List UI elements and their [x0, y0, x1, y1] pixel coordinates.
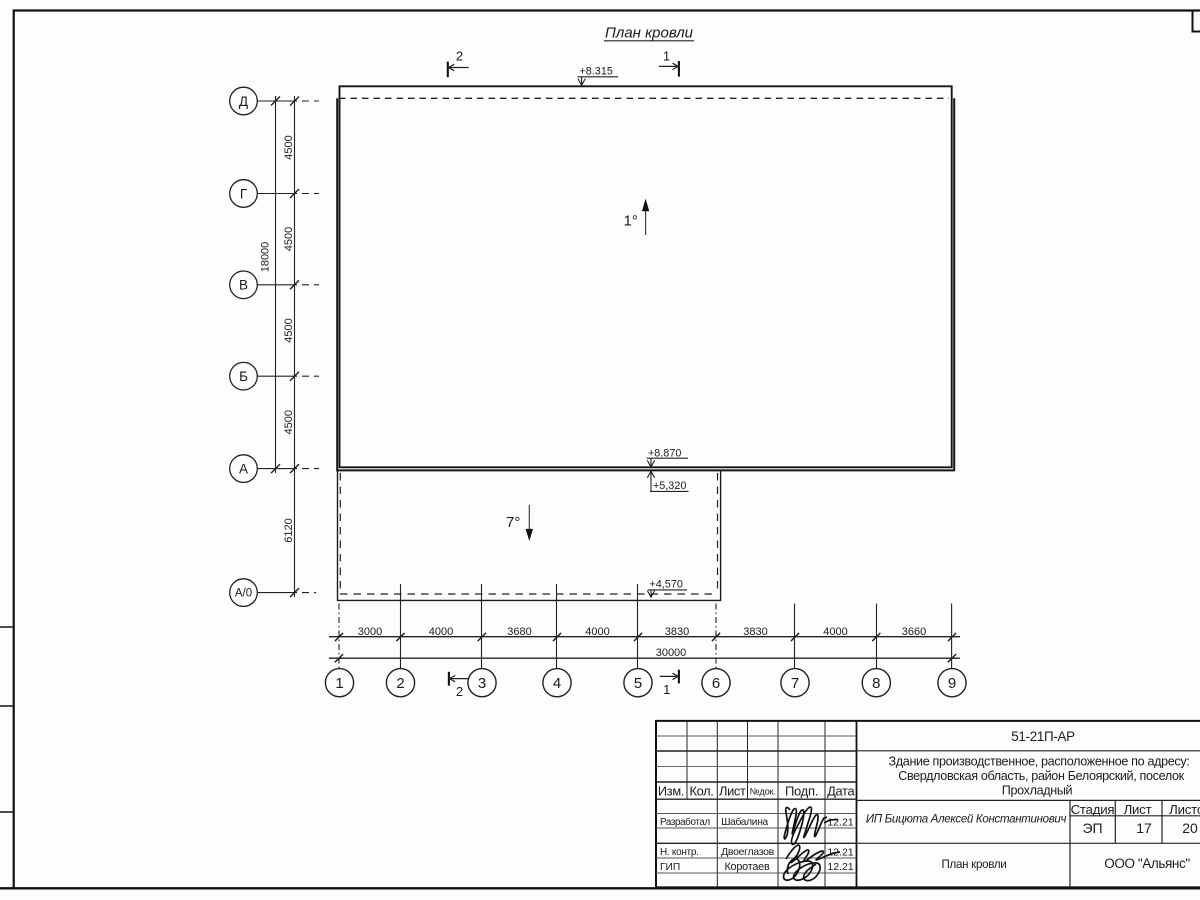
svg-text:20: 20 [1182, 820, 1198, 836]
svg-text:4500: 4500 [283, 410, 295, 434]
svg-text:План кровли: План кровли [942, 858, 1007, 871]
svg-text:3660: 3660 [902, 626, 926, 638]
svg-text:ГИП: ГИП [660, 862, 680, 873]
svg-text:Дата: Дата [827, 784, 855, 799]
svg-text:51-21П-АР: 51-21П-АР [1011, 729, 1075, 744]
svg-text:3830: 3830 [743, 626, 767, 638]
svg-text:7°: 7° [506, 514, 520, 531]
svg-text:5: 5 [634, 675, 642, 692]
svg-text:1: 1 [663, 682, 670, 697]
svg-text:План кровли: План кровли [605, 25, 694, 42]
svg-text:Подп.: Подп. [785, 784, 818, 799]
svg-text:8: 8 [872, 675, 880, 692]
svg-text:+8.315: +8.315 [580, 65, 613, 77]
svg-text:1°: 1° [624, 212, 638, 229]
svg-text:6: 6 [712, 675, 720, 692]
svg-text:12.21: 12.21 [827, 816, 853, 828]
svg-text:3: 3 [478, 675, 486, 692]
svg-text:Кол.: Кол. [689, 784, 713, 799]
svg-text:А/0: А/0 [235, 588, 252, 600]
svg-text:4000: 4000 [429, 626, 453, 638]
svg-text:4000: 4000 [585, 626, 609, 638]
svg-text:+4,570: +4,570 [650, 578, 683, 590]
svg-text:3830: 3830 [665, 626, 689, 638]
svg-text:Здание производственное, распо: Здание производственное, расположенное п… [889, 754, 1190, 768]
svg-text:4500: 4500 [283, 135, 295, 159]
svg-text:+8.870: +8.870 [648, 447, 681, 459]
svg-text:6120: 6120 [283, 518, 295, 542]
svg-text:ООО "Альянс": ООО "Альянс" [1104, 856, 1190, 871]
svg-text:ИП Бицюта Алексей Константинов: ИП Бицюта Алексей Константинович [866, 813, 1067, 825]
svg-text:Шабалина: Шабалина [721, 816, 768, 828]
svg-text:17: 17 [1136, 820, 1152, 836]
svg-text:9: 9 [948, 675, 956, 692]
svg-text:12.21: 12.21 [827, 861, 853, 873]
svg-text:18000: 18000 [260, 242, 272, 273]
svg-text:Д: Д [239, 94, 248, 109]
svg-text:Стадия: Стадия [1071, 802, 1115, 817]
svg-text:Свердловская область, район Бе: Свердловская область, район Белоярский, … [898, 769, 1184, 783]
svg-text:4: 4 [553, 675, 561, 692]
svg-text:2: 2 [456, 684, 463, 699]
svg-text:1: 1 [335, 675, 343, 692]
svg-text:7: 7 [791, 675, 799, 692]
svg-text:1: 1 [663, 49, 670, 64]
svg-text:30000: 30000 [656, 647, 687, 659]
svg-text:В: В [239, 278, 248, 293]
svg-text:+5,320: +5,320 [653, 480, 686, 492]
svg-text:2: 2 [456, 49, 463, 64]
svg-text:4500: 4500 [283, 227, 295, 251]
svg-text:4500: 4500 [283, 318, 295, 342]
svg-text:Б: Б [239, 369, 248, 384]
svg-text:4000: 4000 [823, 626, 847, 638]
svg-text:Изм.: Изм. [658, 784, 684, 799]
svg-text:№док.: №док. [750, 787, 776, 797]
svg-text:3000: 3000 [358, 626, 382, 638]
svg-text:А: А [239, 461, 248, 476]
svg-text:Лист: Лист [1124, 802, 1152, 817]
svg-text:Прохладный: Прохладный [1002, 784, 1073, 798]
svg-text:Листов: Листов [1169, 802, 1200, 817]
svg-text:12.21: 12.21 [827, 846, 853, 858]
svg-text:Лист: Лист [719, 784, 746, 799]
svg-text:ЭП: ЭП [1082, 820, 1102, 836]
svg-text:Двоеглазов: Двоеглазов [721, 846, 775, 858]
svg-text:Коротаев: Коротаев [724, 861, 769, 873]
svg-text:Разработал: Разработал [660, 817, 710, 828]
svg-text:Г: Г [240, 186, 248, 201]
svg-text:2: 2 [396, 675, 404, 692]
svg-text:Н. контр.: Н. контр. [660, 847, 699, 858]
svg-text:3680: 3680 [507, 626, 531, 638]
